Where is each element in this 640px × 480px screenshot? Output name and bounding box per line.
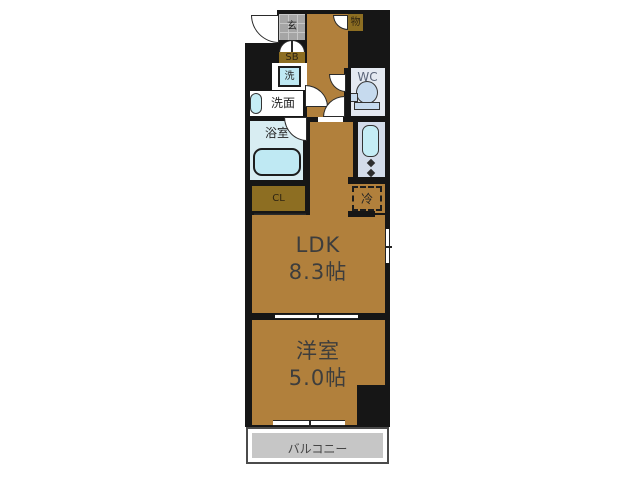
ldk-floor-upper [310,122,353,215]
refrigerator-space: 冷 [352,186,382,211]
bathtub-icon [253,148,301,176]
kitchen-sink-icon [362,125,379,157]
ldk-name: LDK [250,232,386,259]
toilet-bowl-icon [356,81,378,104]
entrance-label: 玄 [287,21,297,32]
western-room-label: 洋室 5.0帖 [250,338,386,392]
toilet-base-icon [354,102,380,110]
storage-box: 物 [348,14,363,31]
balcony: バルコニー [246,427,389,464]
washer-label: 洗 [285,71,295,82]
ldk-size: 8.3帖 [250,259,386,286]
balcony-window [273,420,345,426]
western-room-name: 洋室 [250,338,386,365]
entrance-tile: 玄 [279,14,305,40]
refrigerator-label: 冷 [361,192,373,206]
kitchen-wall [348,177,385,184]
kitchen-wall-lower [348,211,375,217]
shoe-box: SB [279,52,305,63]
storage-label: 物 [351,17,361,28]
ldk-side-window [385,229,390,263]
sliding-door [275,314,358,319]
window-mullion [385,246,392,248]
shoe-box-label: SB [285,52,298,63]
balcony-window-handle [309,420,311,427]
closet: CL [252,186,305,211]
washing-machine-icon: 洗 [278,66,301,87]
washroom-label: 洗面 [263,97,303,110]
floorplan-canvas: 玄 SB 物 洗 洗面 WC 浴室 CL 冷 LDK [0,0,640,480]
closet-label: CL [272,193,285,204]
western-room-size: 5.0帖 [250,365,386,392]
balcony-label: バルコニー [248,440,387,457]
ldk-room-label: LDK 8.3帖 [250,232,386,286]
washroom-sink-icon [250,93,262,114]
toilet-tank-icon [350,93,358,102]
